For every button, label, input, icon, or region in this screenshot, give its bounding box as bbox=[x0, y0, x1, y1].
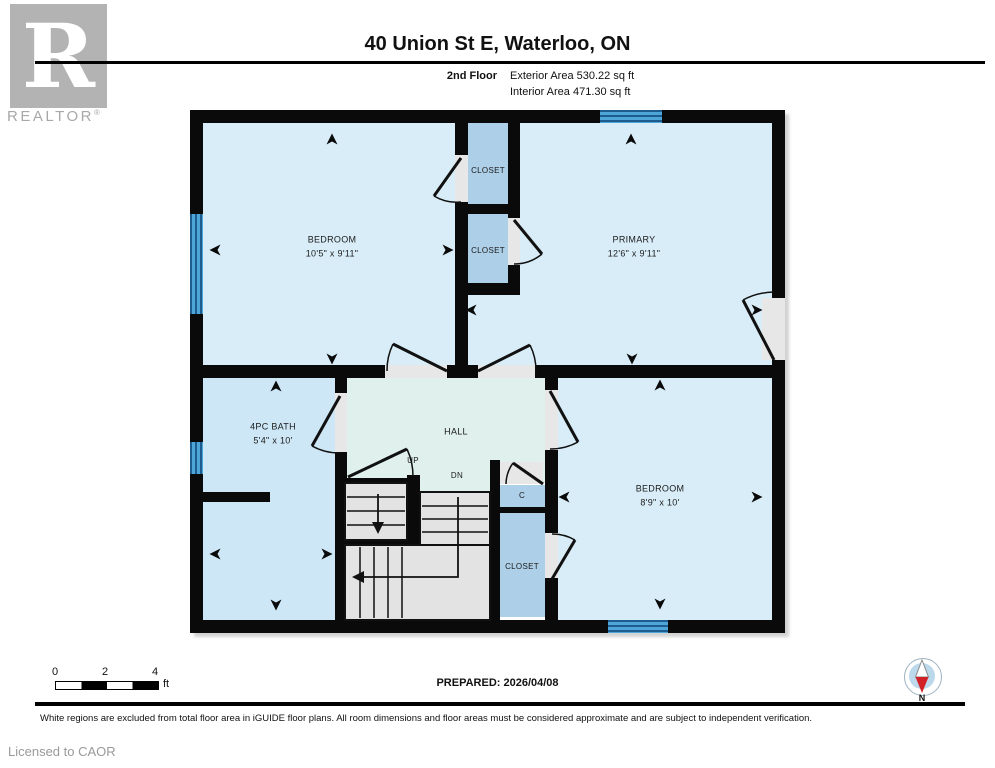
disclaimer-text: White regions are excluded from total fl… bbox=[40, 713, 960, 724]
stair-up-label: UP bbox=[407, 455, 419, 467]
prepared-date: PREPARED: 2026/04/08 bbox=[0, 677, 995, 689]
license-text: Licensed to CAOR bbox=[8, 744, 116, 759]
opening-closet-c-door bbox=[500, 462, 543, 484]
opening-closet-br-door bbox=[545, 533, 558, 578]
floor-label: 2nd Floor bbox=[420, 70, 497, 82]
wall-top bbox=[190, 110, 785, 123]
window-primary bbox=[600, 110, 662, 123]
stair-dn-label: DN bbox=[451, 470, 463, 482]
wall-stair-right bbox=[490, 460, 500, 620]
wall-hall-stub bbox=[447, 365, 478, 378]
wall-stair-header bbox=[345, 478, 407, 483]
interior-area: Interior Area 471.30 sq ft bbox=[510, 86, 630, 98]
wall-bath-stub bbox=[203, 492, 270, 502]
wall-bottom bbox=[190, 620, 785, 633]
room-label-closet-top: CLOSET bbox=[471, 165, 505, 177]
opening-primary-right-door bbox=[762, 298, 785, 360]
window-bedroom2 bbox=[608, 620, 668, 633]
opening-bedroom2-door bbox=[545, 390, 558, 450]
compass-disc bbox=[909, 663, 935, 689]
opening-primary-door bbox=[478, 365, 535, 378]
room-label-bedroom-2: BEDROOM 8'9" x 10' bbox=[636, 483, 685, 510]
wall-c-closet bbox=[500, 507, 545, 513]
exterior-area: Exterior Area 530.22 sq ft bbox=[510, 70, 634, 82]
opening-closet-top-door bbox=[455, 155, 468, 202]
room-label-closet-c: C bbox=[519, 490, 525, 502]
room-label-hall: HALL bbox=[444, 425, 468, 439]
wall-closet-mid bbox=[455, 204, 520, 214]
window-bedroom1 bbox=[190, 214, 203, 314]
realtor-logo: R bbox=[10, 4, 107, 108]
opening-closet-mid-door bbox=[508, 218, 520, 265]
realtor-wordmark: REALTOR® bbox=[7, 108, 102, 125]
room-label-closet-br: CLOSET bbox=[505, 561, 539, 573]
wall-stair-sep bbox=[345, 540, 407, 545]
header-rule bbox=[35, 61, 985, 64]
room-label-closet-mid: CLOSET bbox=[471, 245, 505, 257]
room-primary-ext bbox=[468, 295, 520, 365]
realtor-r-icon: R bbox=[22, 12, 95, 100]
room-label-bedroom-1: BEDROOM 10'5" x 9'11" bbox=[306, 234, 359, 261]
compass-north-label: N bbox=[908, 693, 936, 703]
wall-closet-bottom bbox=[455, 283, 520, 295]
page-title: 40 Union St E, Waterloo, ON bbox=[0, 33, 995, 56]
room-closet-top bbox=[468, 123, 508, 204]
registered-mark: ® bbox=[94, 108, 102, 117]
wall-stair-mid bbox=[407, 475, 420, 545]
opening-bedroom1-door bbox=[385, 365, 447, 378]
window-bath bbox=[190, 442, 203, 474]
room-hall-ext bbox=[420, 483, 490, 492]
wall-bedroom-closet bbox=[455, 110, 468, 378]
room-label-primary: PRIMARY 12'6" x 9'11" bbox=[608, 234, 661, 261]
opening-bath-door bbox=[335, 393, 347, 452]
floor-plan-page: R REALTOR® 40 Union St E, Waterloo, ON 2… bbox=[0, 0, 995, 768]
footer-rule bbox=[35, 702, 965, 706]
room-label-bath: 4PC BATH 5'4" x 10' bbox=[250, 421, 296, 448]
